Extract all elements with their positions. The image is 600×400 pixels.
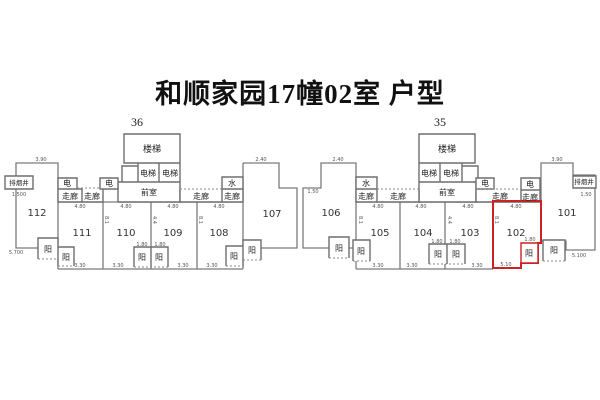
unit-label-102: 102 xyxy=(506,228,525,239)
dim-label: 1.80 xyxy=(154,242,165,248)
left-balcony-boxes xyxy=(38,238,261,267)
dim-label-vertical: 8.1 xyxy=(493,216,499,224)
room-label-elevator: 电梯 xyxy=(421,168,437,178)
dim-label: 4.80 xyxy=(372,204,383,210)
dim-label: 4.80 xyxy=(213,204,224,210)
dim-label-vertical: 4.4 xyxy=(151,216,157,224)
room-label-corridor: 走廊 xyxy=(492,191,508,201)
dim-label: 3.90 xyxy=(35,157,46,163)
balcony-label: 阳 xyxy=(230,252,238,261)
floorplan-page: 和顺家园17幢02室 户型 36 35 楼梯 电梯 电梯 前室 排烟井 电 电 … xyxy=(0,0,600,400)
room-label-water: 水 xyxy=(228,178,236,188)
unit-label-103: 103 xyxy=(460,228,479,239)
dim-label: 4.80 xyxy=(510,204,521,210)
room-label-electric: 电 xyxy=(105,178,113,188)
dim-label: 4.80 xyxy=(462,204,473,210)
dim-label: 4.80 xyxy=(74,204,85,210)
room-label-electric: 电 xyxy=(63,178,71,188)
dim-label: 3.30 xyxy=(206,263,217,269)
dim-label-vertical: 8.1 xyxy=(197,216,203,224)
dim-label-vertical: 8.1 xyxy=(103,216,109,224)
dim-label: 4.80 xyxy=(415,204,426,210)
dim-label: 1.80 xyxy=(431,239,442,245)
room-label-corridor: 走廊 xyxy=(62,191,78,201)
balcony-label: 阳 xyxy=(434,250,442,259)
room-label-electric: 电 xyxy=(481,178,489,188)
dim-label: 1.50 xyxy=(580,192,591,198)
room-label-water: 水 xyxy=(362,178,370,188)
floorplan-drawing: 和顺家园17幢02室 户型 36 35 楼梯 电梯 电梯 前室 排烟井 电 电 … xyxy=(0,0,600,400)
room-label-corridor: 走廊 xyxy=(224,191,240,201)
unit-label-107: 107 xyxy=(262,209,281,220)
balcony-label: 阳 xyxy=(155,253,163,262)
room-label-vestibule: 前室 xyxy=(141,187,157,197)
balcony-label: 阳 xyxy=(452,250,460,259)
dim-label: 3.90 xyxy=(551,157,562,163)
dim-label: 3.30 xyxy=(177,263,188,269)
room-label-smoke-shaft: 排烟井 xyxy=(9,178,29,187)
dim-label: 3.30 xyxy=(74,263,85,269)
unit-label-109: 109 xyxy=(163,228,182,239)
dim-label: 5.100 xyxy=(572,253,586,259)
dim-label: 1.50 xyxy=(307,189,318,195)
dim-label-vertical: 4.4 xyxy=(446,216,452,224)
balcony-label: 阳 xyxy=(138,253,146,262)
block-label-36: 36 xyxy=(131,115,143,129)
room-label-smoke-shaft: 排烟井 xyxy=(574,177,594,186)
room-label-corridor: 走廊 xyxy=(84,191,100,201)
dim-label: 2.40 xyxy=(255,157,266,163)
unit-label-108: 108 xyxy=(209,228,228,239)
room-label-corridor: 走廊 xyxy=(358,191,374,201)
unit-label-104: 104 xyxy=(413,228,432,239)
room-label-electric: 电 xyxy=(526,179,534,189)
dim-label: 2.40 xyxy=(332,157,343,163)
dim-label: 1.80 xyxy=(136,242,147,248)
unit-label-105: 105 xyxy=(370,228,389,239)
dim-label: 3.30 xyxy=(406,263,417,269)
room-label-corridor: 走廊 xyxy=(522,192,538,202)
room-label-elevator: 电梯 xyxy=(140,168,156,178)
unit-label-112: 112 xyxy=(27,208,46,219)
balcony-label: 阳 xyxy=(44,245,52,254)
balcony-label: 阳 xyxy=(248,246,256,255)
unit-label-101: 101 xyxy=(557,208,576,219)
dim-label: 3.30 xyxy=(471,263,482,269)
room-label-vestibule: 前室 xyxy=(439,187,455,197)
page-title: 和顺家园17幢02室 户型 xyxy=(155,78,445,109)
balcony-label-102: 阳 xyxy=(525,249,533,258)
unit-label-106: 106 xyxy=(321,208,340,219)
unit-label-110: 110 xyxy=(116,228,135,239)
dim-label: 3.30 xyxy=(112,263,123,269)
dim-label-vertical: 8.1 xyxy=(357,216,363,224)
dim-label: 4.80 xyxy=(167,204,178,210)
balcony-label: 阳 xyxy=(550,246,558,255)
dim-label: 5.700 xyxy=(9,250,23,256)
balcony-label: 阳 xyxy=(335,244,343,253)
balcony-label: 阳 xyxy=(357,247,365,256)
room-label-corridor: 走廊 xyxy=(193,191,209,201)
dim-label: 5.10 xyxy=(500,262,511,268)
unit-label-111: 111 xyxy=(72,228,91,239)
dim-label: 1.500 xyxy=(12,192,26,198)
room-label-stairs: 楼梯 xyxy=(143,143,161,155)
dim-label: 4.80 xyxy=(120,204,131,210)
room-label-elevator: 电梯 xyxy=(443,168,459,178)
dim-label: 3.30 xyxy=(372,263,383,269)
room-label-corridor: 走廊 xyxy=(390,191,406,201)
balcony-label: 阳 xyxy=(62,253,70,262)
dim-label: 1.80 xyxy=(524,237,535,243)
dim-label: 1.80 xyxy=(449,239,460,245)
room-label-elevator: 电梯 xyxy=(162,168,178,178)
room-label-stairs: 楼梯 xyxy=(438,143,456,155)
block-label-35: 35 xyxy=(434,115,446,129)
